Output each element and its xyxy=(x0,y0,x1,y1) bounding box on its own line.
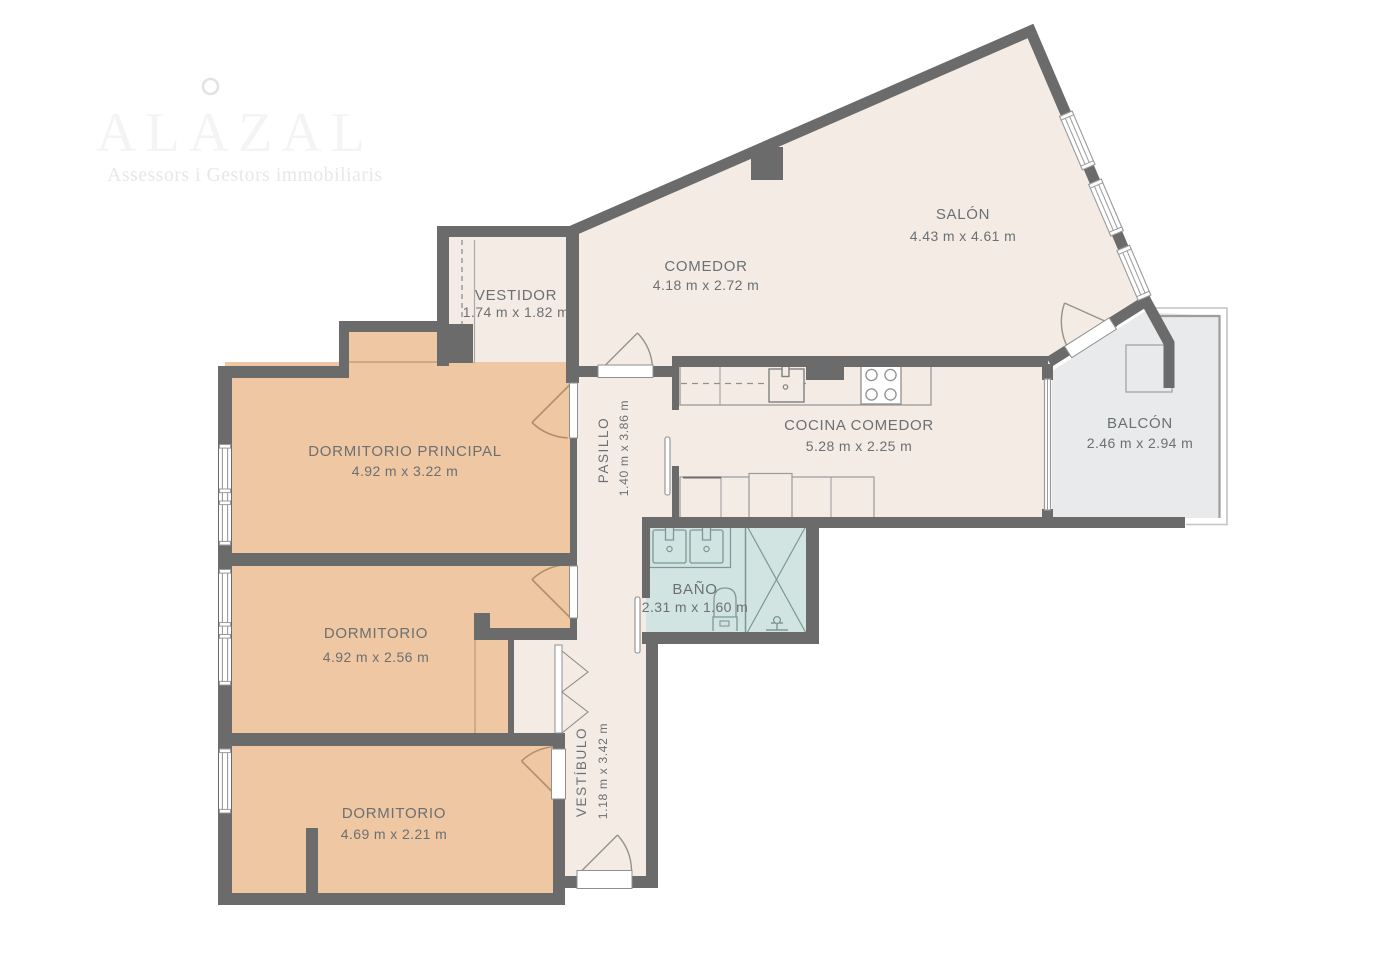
svg-text:COMEDOR: COMEDOR xyxy=(664,258,747,275)
svg-text:BALCÓN: BALCÓN xyxy=(1107,415,1173,432)
svg-text:4.18 m x 2.72 m: 4.18 m x 2.72 m xyxy=(653,277,759,293)
svg-text:PASILLO: PASILLO xyxy=(596,417,611,483)
svg-text:4.69 m x 2.21 m: 4.69 m x 2.21 m xyxy=(341,826,447,842)
svg-text:DORMITORIO: DORMITORIO xyxy=(324,625,428,642)
svg-text:5.28 m x 2.25 m: 5.28 m x 2.25 m xyxy=(806,438,912,454)
svg-text:1.74 m x 1.82 m: 1.74 m x 1.82 m xyxy=(463,304,569,320)
svg-text:1.40 m x 3.86 m: 1.40 m x 3.86 m xyxy=(617,400,631,496)
svg-text:BAÑO: BAÑO xyxy=(672,581,717,598)
svg-text:1.18 m x 3.42 m: 1.18 m x 3.42 m xyxy=(596,723,610,819)
svg-text:2.46 m x 2.94 m: 2.46 m x 2.94 m xyxy=(1087,435,1193,451)
svg-text:SALÓN: SALÓN xyxy=(936,206,990,223)
svg-text:DORMITORIO: DORMITORIO xyxy=(342,805,446,822)
svg-text:ALAZAL: ALAZAL xyxy=(96,102,374,164)
svg-text:VESTIDOR: VESTIDOR xyxy=(475,287,557,304)
svg-text:VESTÍBULO: VESTÍBULO xyxy=(574,727,589,817)
svg-text:4.43 m x 4.61 m: 4.43 m x 4.61 m xyxy=(910,228,1016,244)
svg-text:2.31 m x 1.60 m: 2.31 m x 1.60 m xyxy=(642,599,748,615)
svg-text:Assessors i Gestors immobiliar: Assessors i Gestors immobiliaris xyxy=(107,165,382,186)
svg-text:COCINA COMEDOR: COCINA COMEDOR xyxy=(784,417,934,434)
svg-text:4.92 m x 2.56 m: 4.92 m x 2.56 m xyxy=(323,649,429,665)
svg-text:4.92 m x 3.22 m: 4.92 m x 3.22 m xyxy=(352,463,458,479)
svg-text:DORMITORIO PRINCIPAL: DORMITORIO PRINCIPAL xyxy=(308,443,501,460)
